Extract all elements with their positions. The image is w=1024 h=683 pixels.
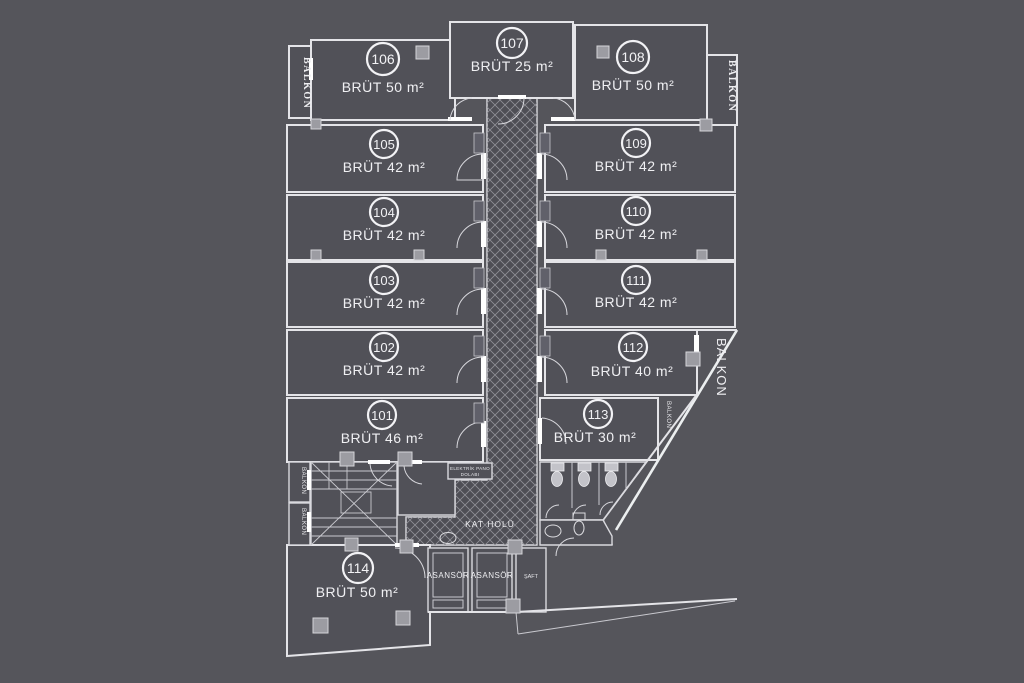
balkon-label-113: BALKON	[665, 401, 671, 428]
unit-105-number: 105	[373, 137, 395, 152]
room-108	[575, 25, 707, 120]
unit-109-number: 109	[625, 136, 647, 151]
balkon-label-top-right: BALKON	[726, 60, 737, 112]
asansor-label-2: ASANSÖR	[471, 571, 514, 580]
unit-110-area: BRÜT 42 m²	[595, 225, 678, 242]
unit-112-area: BRÜT 40 m²	[591, 362, 674, 379]
floor-plan-drawing: 106 BRÜT 50 m² 107 BRÜT 25 m² 108 BRÜT 5…	[0, 0, 1024, 683]
unit-114-number: 114	[347, 560, 370, 576]
balkon-label-top-left: BALKON	[301, 57, 312, 109]
elevator-1	[428, 548, 468, 612]
unit-113-number: 113	[588, 407, 609, 422]
unit-102-area: BRÜT 42 m²	[343, 361, 426, 378]
unit-107-number: 107	[500, 35, 524, 51]
balkon-label-mid-2: BALKON	[300, 508, 306, 535]
unit-108-number: 108	[621, 49, 645, 65]
balkon-label-112: BALKON	[714, 338, 729, 397]
unit-114-area: BRÜT 50 m²	[316, 583, 399, 600]
unit-108-area: BRÜT 50 m²	[592, 76, 675, 93]
unit-104-area: BRÜT 42 m²	[343, 226, 426, 243]
unit-106-number: 106	[371, 51, 395, 67]
toilet-fixtures	[551, 463, 618, 487]
unit-103-area: BRÜT 42 m²	[343, 294, 426, 311]
utility-room	[398, 462, 455, 515]
unit-110-number: 110	[626, 204, 647, 219]
unit-107-area: BRÜT 25 m²	[471, 57, 554, 74]
elektrik-pano-label-line2: DOLABI	[461, 472, 480, 477]
unit-112-number: 112	[623, 340, 644, 355]
kat-holu-label: KAT HOLÜ	[465, 519, 515, 529]
unit-113-area: BRÜT 30 m²	[554, 428, 637, 445]
asansor-label-1: ASANSÖR	[427, 571, 470, 580]
elektrik-pano-label-line1: ELEKTRİK PANO	[450, 465, 490, 471]
floor-plan-page: 106 BRÜT 50 m² 107 BRÜT 25 m² 108 BRÜT 5…	[0, 0, 1024, 683]
balkon-label-mid-1: BALKON	[300, 467, 306, 494]
unit-111-area: BRÜT 42 m²	[595, 293, 678, 310]
unit-102-number: 102	[373, 340, 395, 355]
saft-label: ŞAFT	[524, 574, 539, 580]
unit-109-area: BRÜT 42 m²	[595, 157, 678, 174]
unit-105-area: BRÜT 42 m²	[343, 158, 426, 175]
unit-111-number: 111	[626, 273, 646, 288]
unit-101-number: 101	[371, 408, 393, 423]
unit-103-number: 103	[373, 273, 395, 288]
unit-104-number: 104	[373, 205, 395, 220]
unit-106-area: BRÜT 50 m²	[342, 78, 425, 95]
unit-101-area: BRÜT 46 m²	[341, 429, 424, 446]
